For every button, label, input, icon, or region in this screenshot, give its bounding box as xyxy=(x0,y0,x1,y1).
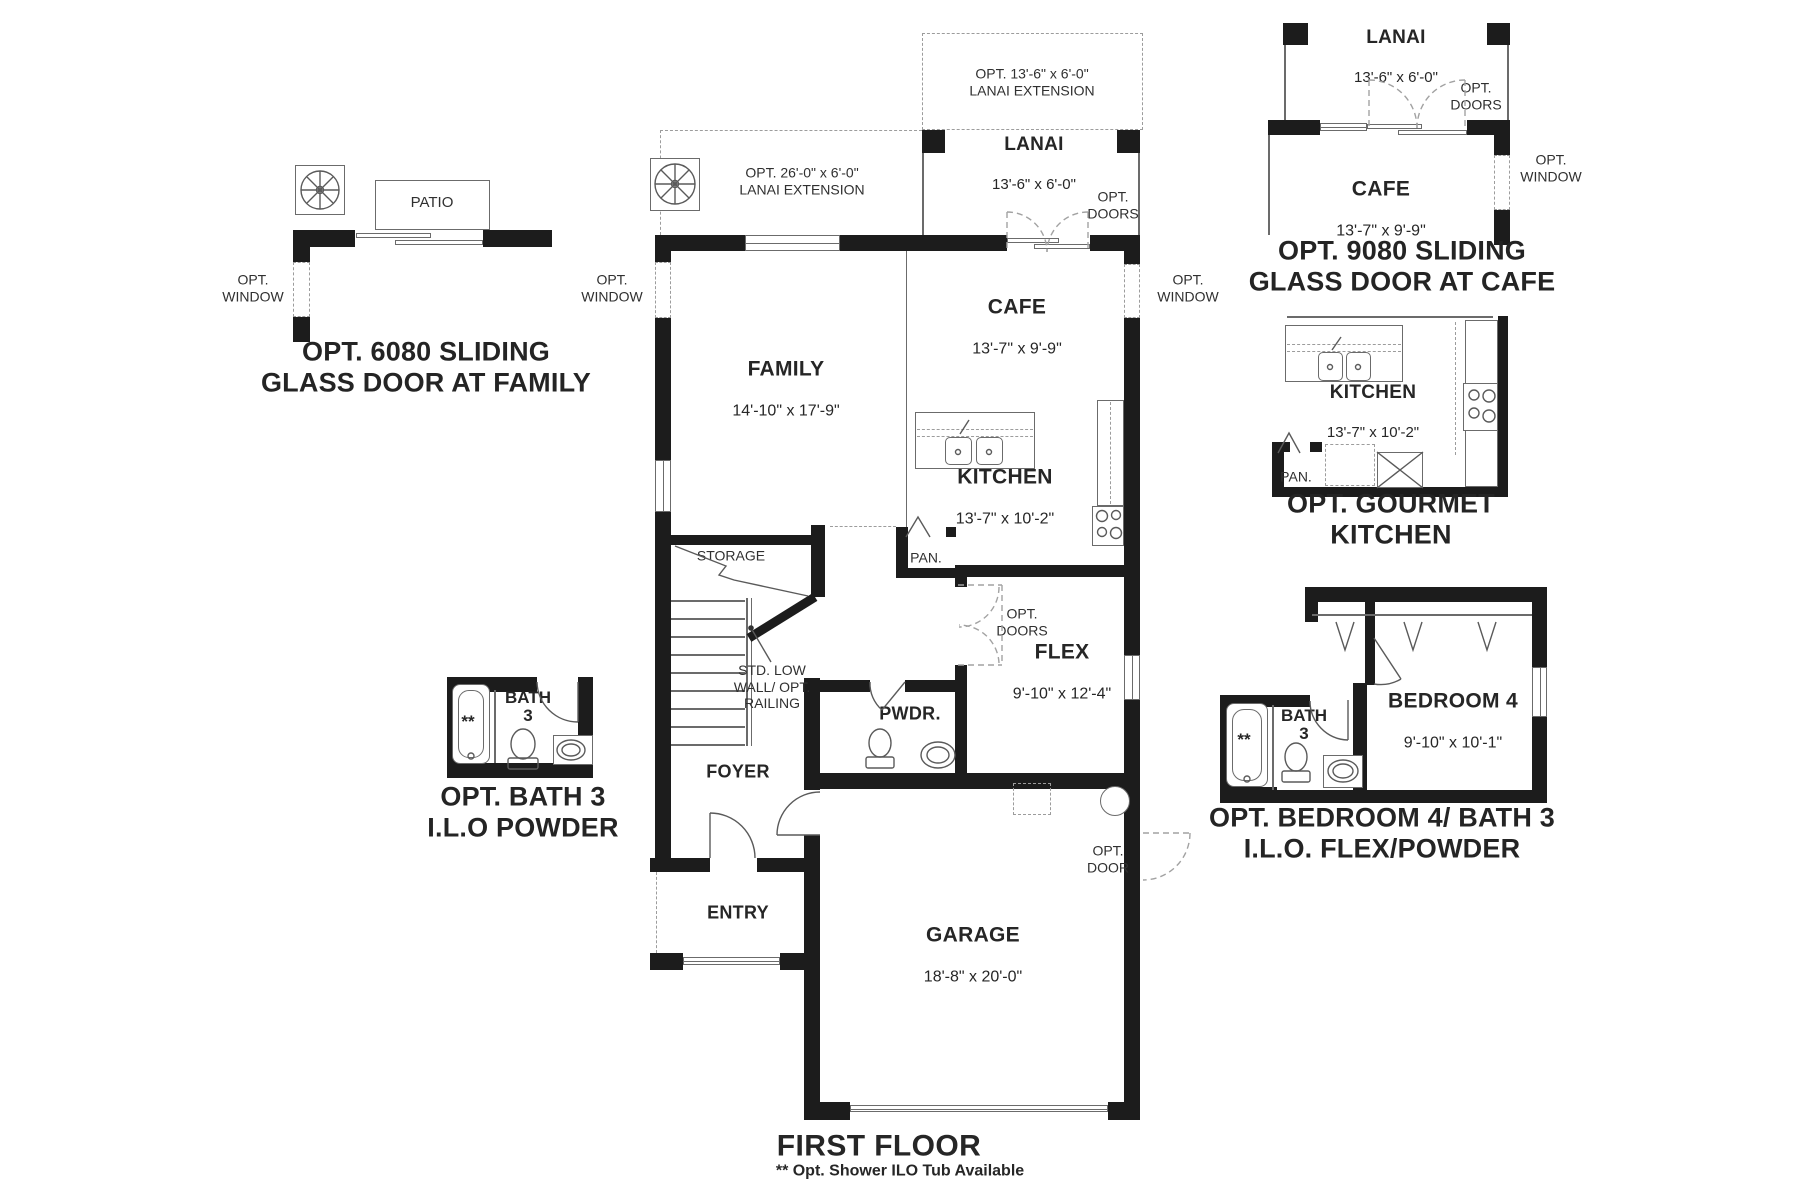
entry-porch-window xyxy=(683,957,780,965)
entry-porch-wall-right xyxy=(780,953,820,970)
garage-door-opening xyxy=(850,1105,1108,1112)
inset-cafe-lanai-line-right xyxy=(1507,45,1509,120)
bedroom4-vanity xyxy=(1323,755,1363,788)
bedroom4-shower-note: ** xyxy=(1237,731,1250,749)
inset-cafe-opt-window xyxy=(1494,155,1510,210)
opt-door-label-garage: OPT. DOOR xyxy=(1087,842,1129,875)
inset-cafe-lanai-line-left xyxy=(1284,45,1286,120)
kitchen-counter-dash xyxy=(1110,402,1111,504)
stair-tread xyxy=(671,636,745,638)
gourmet-pantry-label: PAN. xyxy=(1280,469,1312,486)
family-left-window xyxy=(655,460,671,512)
pantry-door-post xyxy=(946,527,956,537)
gourmet-island-dash-1 xyxy=(1287,344,1401,345)
family-top-wall-left xyxy=(655,235,745,251)
inset-cafe-lanai-label: LANAI 13'-6" x 6'-0" xyxy=(1354,8,1438,106)
cafe-sliding-door-panel-1 xyxy=(1007,238,1059,243)
stair-tread xyxy=(671,600,745,602)
bedroom4-left-stub xyxy=(1305,587,1318,622)
opt-window-label-right: OPT. WINDOW xyxy=(1157,271,1218,304)
kitchen-flex-wall xyxy=(958,565,1124,577)
gourmet-top-line xyxy=(1287,316,1493,318)
ceiling-fan-icon-main xyxy=(650,158,700,211)
stair-angled-wall xyxy=(749,597,815,638)
bath3-vanity xyxy=(553,735,593,765)
right-wall-bottom xyxy=(1124,700,1140,1120)
bath3-caption: OPT. BATH 3 I.L.O POWDER xyxy=(427,782,618,845)
water-heater xyxy=(1100,786,1130,816)
powder-top-wall-left xyxy=(820,680,870,692)
hanger-icon xyxy=(1404,622,1422,650)
inset-family-slider-panel-1 xyxy=(356,233,431,238)
flex-opt-door-swing xyxy=(959,625,999,663)
island-counter-dash-1 xyxy=(917,429,1033,430)
lanai-corner-post-left xyxy=(922,130,945,153)
toilet-bowl xyxy=(1285,743,1307,771)
storage-label: STORAGE xyxy=(697,548,765,565)
stair-tread xyxy=(671,654,745,656)
toilet-bowl xyxy=(511,729,535,759)
inset-family-opt-window-label: OPT. WINDOW xyxy=(222,271,283,304)
inset-cafe-opt-window-label: OPT. WINDOW xyxy=(1520,151,1581,184)
inset-cafe-top-wall-right xyxy=(1467,120,1510,135)
ceiling-fan-icon-inset xyxy=(295,165,345,215)
entry-porch-corner-post xyxy=(650,953,683,970)
gourmet-kitchen-label: KITCHEN 13'-7" x 10'-2" xyxy=(1327,363,1419,461)
lanai-extension-26-label: OPT. 26'-0" x 6'-0" LANAI EXTENSION xyxy=(739,164,864,197)
flex-room-label: FLEX 9'-10" x 12'-4" xyxy=(1013,621,1111,722)
bedroom4-closet-wall xyxy=(1365,587,1375,685)
foyer-label: FOYER xyxy=(706,761,770,782)
lanai-extension-13-label: OPT. 13'-6" x 6'-0" LANAI EXTENSION xyxy=(969,65,1094,98)
inset-cafe-slider-panel-2 xyxy=(1398,130,1467,135)
foyer-bottom-wall-left xyxy=(650,858,710,872)
garage-top-wall xyxy=(804,773,1140,789)
foyer-bottom-wall-right xyxy=(757,858,820,872)
sink-basin-inner xyxy=(927,747,949,763)
toilet-tank xyxy=(1282,771,1310,782)
garage-appliance-dashed-box xyxy=(1013,783,1051,815)
inset-cafe-caption: OPT. 9080 SLIDING GLASS DOOR AT CAFE xyxy=(1249,236,1556,299)
inset-family-slider-panel-2 xyxy=(395,240,483,245)
gourmet-counter-dash xyxy=(1455,322,1456,455)
family-room-label: FAMILY 14'-10" x 17'-9" xyxy=(732,338,839,439)
inset-cafe-lanai-post-right xyxy=(1487,23,1510,45)
bath3-label: BATH 3 xyxy=(505,689,551,725)
lanai-room-label: LANAI 13'-6" x 6'-0" xyxy=(992,115,1076,213)
sink-basin xyxy=(921,742,955,768)
garage-bottom-corner-left xyxy=(820,1102,850,1120)
entry-label: ENTRY xyxy=(707,902,769,923)
storage-right-wall xyxy=(811,525,825,597)
stair-tread xyxy=(671,618,745,620)
cafe-right-wall-top xyxy=(1124,251,1140,264)
inset-cafe-opt-doors-label: OPT. DOORS xyxy=(1450,79,1501,112)
inset-family-opt-window xyxy=(293,262,310,317)
kitchen-room-label: KITCHEN 13'-7" x 10'-2" xyxy=(956,446,1054,547)
gourmet-right-wall xyxy=(1498,316,1508,496)
stair-tread xyxy=(671,726,745,728)
flex-left-post-top xyxy=(955,565,967,587)
bedroom4-closet-shelf xyxy=(1312,614,1537,616)
pantry-bottom-wall xyxy=(896,568,958,578)
front-door-swing xyxy=(710,813,755,858)
powder-top-wall-right xyxy=(905,680,967,692)
inset-cafe-top-wall-left xyxy=(1268,120,1320,135)
pantry-label: PAN. xyxy=(910,550,942,567)
patio-label: PATIO xyxy=(411,194,454,212)
powder-label: PWDR. xyxy=(879,703,941,724)
page-title: FIRST FLOOR xyxy=(777,1128,981,1163)
garage-bottom-corner-right xyxy=(1108,1102,1140,1120)
inset-cafe-slider-panel-1 xyxy=(1367,124,1422,129)
inset-cafe-left-line xyxy=(1268,135,1270,235)
lanai-side-line-left xyxy=(922,153,924,235)
flex-left-post-bottom xyxy=(955,665,967,680)
garage-opt-door-swing xyxy=(1143,833,1190,880)
island-counter-dash-2 xyxy=(917,436,1033,437)
stair-note-label: STD. LOW WALL/ OPT. RAILING xyxy=(734,662,811,712)
family-kitchen-floor-line xyxy=(906,251,907,565)
family-left-wall-mid xyxy=(655,318,671,460)
powder-right-wall xyxy=(955,680,967,775)
storage-top-wall xyxy=(671,535,811,545)
family-top-wall-right xyxy=(840,235,922,251)
gourmet-pantry-post-left xyxy=(1272,442,1290,452)
inset-family-top-wall-left xyxy=(293,230,355,247)
bath3-bottom-wall xyxy=(447,763,593,778)
gourmet-caption: OPT. GOURMET KITCHEN xyxy=(1287,489,1495,552)
bedroom4-bath-label: BATH 3 xyxy=(1281,707,1327,743)
bedroom4-window xyxy=(1532,667,1547,717)
family-top-window xyxy=(745,235,840,251)
cafe-top-wall-right xyxy=(1090,235,1140,251)
family-left-wall-bottom xyxy=(655,512,671,858)
pantry-bifold-door xyxy=(906,517,930,537)
gourmet-pantry-post-right xyxy=(1310,442,1322,452)
bath3-shower-note: ** xyxy=(461,713,474,731)
bedroom4-tub-divider xyxy=(1272,705,1274,790)
right-wall-mid xyxy=(1124,318,1140,655)
inset-family-top-wall-right xyxy=(483,230,552,247)
opt-window-left-family xyxy=(655,262,671,318)
inset-family-caption: OPT. 6080 SLIDING GLASS DOOR AT FAMILY xyxy=(261,337,591,400)
opt-doors-label-lanai: OPT. DOORS xyxy=(1087,188,1138,221)
entry-porch-dashed-edge xyxy=(656,872,657,953)
lanai-corner-post-right xyxy=(1117,130,1140,153)
floor-plan-canvas: OPT. 13'-6" x 6'-0" LANAI EXTENSION OPT.… xyxy=(0,0,1800,1200)
garage-room-label: GARAGE 18'-8" x 20'-0" xyxy=(924,904,1022,1005)
toilet-tank xyxy=(866,757,894,768)
garage-door-swing xyxy=(777,792,820,835)
gourmet-range xyxy=(1463,383,1498,431)
flex-right-window xyxy=(1124,655,1140,700)
bedroom4-top-wall xyxy=(1305,587,1547,602)
kitchen-range xyxy=(1092,506,1124,546)
opt-window-label-left: OPT. WINDOW xyxy=(581,271,642,304)
gourmet-island-dash-2 xyxy=(1287,351,1401,352)
foyer-kitchen-cased-opening xyxy=(830,526,896,527)
inset-cafe-top-window xyxy=(1320,123,1367,131)
hanger-icon xyxy=(1336,622,1354,650)
bath3-tub-divider xyxy=(494,690,496,763)
garage-left-wall-bottom xyxy=(804,835,820,1120)
stair-note-leader xyxy=(751,628,771,662)
cafe-top-wall-left xyxy=(922,235,1007,251)
stair-tread xyxy=(671,744,745,746)
bedroom4-caption: OPT. BEDROOM 4/ BATH 3 I.L.O. FLEX/POWDE… xyxy=(1209,803,1555,866)
inset-cafe-lanai-post-left xyxy=(1283,23,1308,45)
cafe-sliding-door-panel-2 xyxy=(1034,244,1090,249)
cafe-room-label: CAFE 13'-7" x 9'-9" xyxy=(972,276,1062,377)
page-footnote: ** Opt. Shower ILO Tub Available xyxy=(776,1163,1024,1182)
hanger-icon xyxy=(1478,622,1496,650)
opt-window-right-cafe xyxy=(1124,264,1140,318)
toilet-bowl xyxy=(869,729,891,757)
bedroom4-room-label: BEDROOM 4 9'-10" x 10'-1" xyxy=(1388,670,1518,771)
flex-opt-door-swing xyxy=(959,587,999,627)
